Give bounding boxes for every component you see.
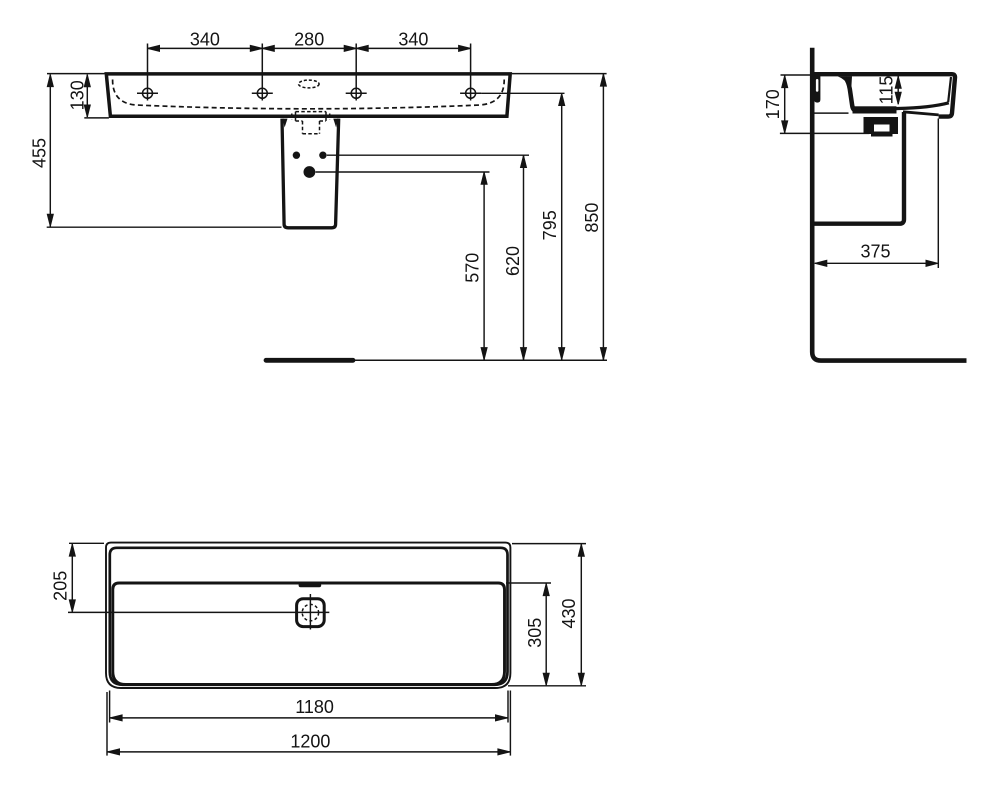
svg-text:455: 455 <box>29 138 49 168</box>
svg-text:430: 430 <box>559 598 579 628</box>
svg-text:620: 620 <box>503 246 523 276</box>
svg-text:570: 570 <box>463 253 483 283</box>
svg-text:1180: 1180 <box>295 697 334 717</box>
svg-text:795: 795 <box>540 210 560 240</box>
svg-text:850: 850 <box>582 203 602 233</box>
svg-text:375: 375 <box>860 242 890 262</box>
svg-text:130: 130 <box>67 80 87 110</box>
svg-text:305: 305 <box>525 618 545 648</box>
svg-text:340: 340 <box>398 29 428 49</box>
svg-text:205: 205 <box>50 571 70 601</box>
svg-text:115: 115 <box>876 76 896 105</box>
svg-text:340: 340 <box>190 29 220 49</box>
svg-text:1200: 1200 <box>290 732 330 752</box>
svg-text:170: 170 <box>763 89 783 119</box>
svg-text:280: 280 <box>294 29 324 49</box>
